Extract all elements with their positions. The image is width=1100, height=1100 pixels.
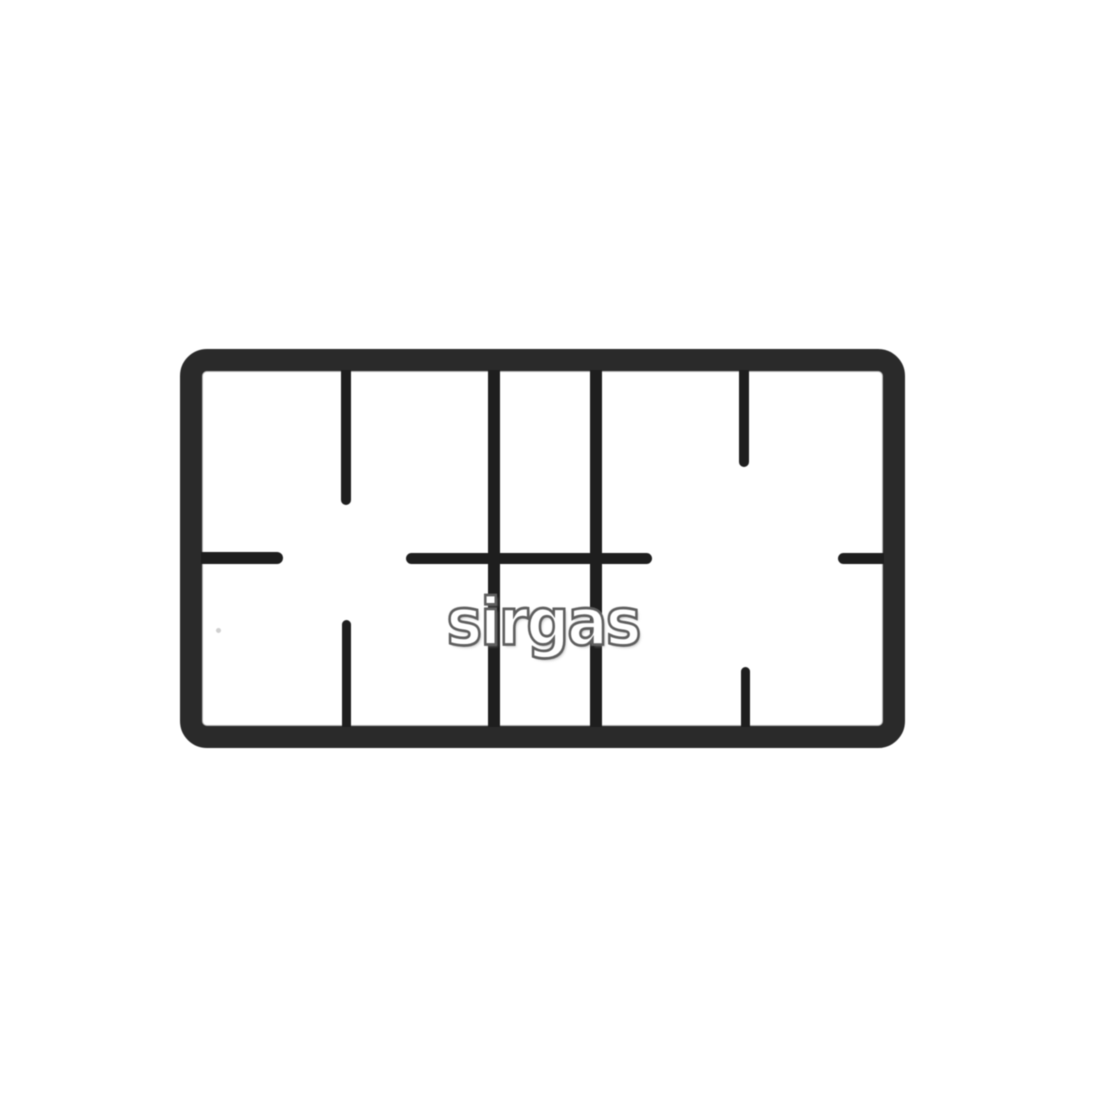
grate-middle-stub-right [838, 553, 884, 564]
grate-center-vertical-bar-left [488, 370, 500, 727]
product-photo-canvas: sirgas [0, 0, 1100, 1100]
grate-top-hanging-bar-right [739, 370, 749, 467]
grate-middle-crossbar [406, 553, 652, 564]
grate-center-vertical-bar-right [590, 370, 602, 727]
grate-bottom-standing-bar-left [342, 620, 351, 727]
grate-top-hanging-bar-left [341, 370, 351, 505]
pan-support-grate-frame: sirgas [180, 349, 905, 748]
product-photo: sirgas [0, 0, 1100, 1100]
brand-watermark: sirgas [436, 591, 650, 656]
grate-middle-stub-left [201, 552, 283, 564]
photo-speckle [216, 628, 221, 633]
grate-bottom-standing-bar-right [741, 667, 750, 727]
